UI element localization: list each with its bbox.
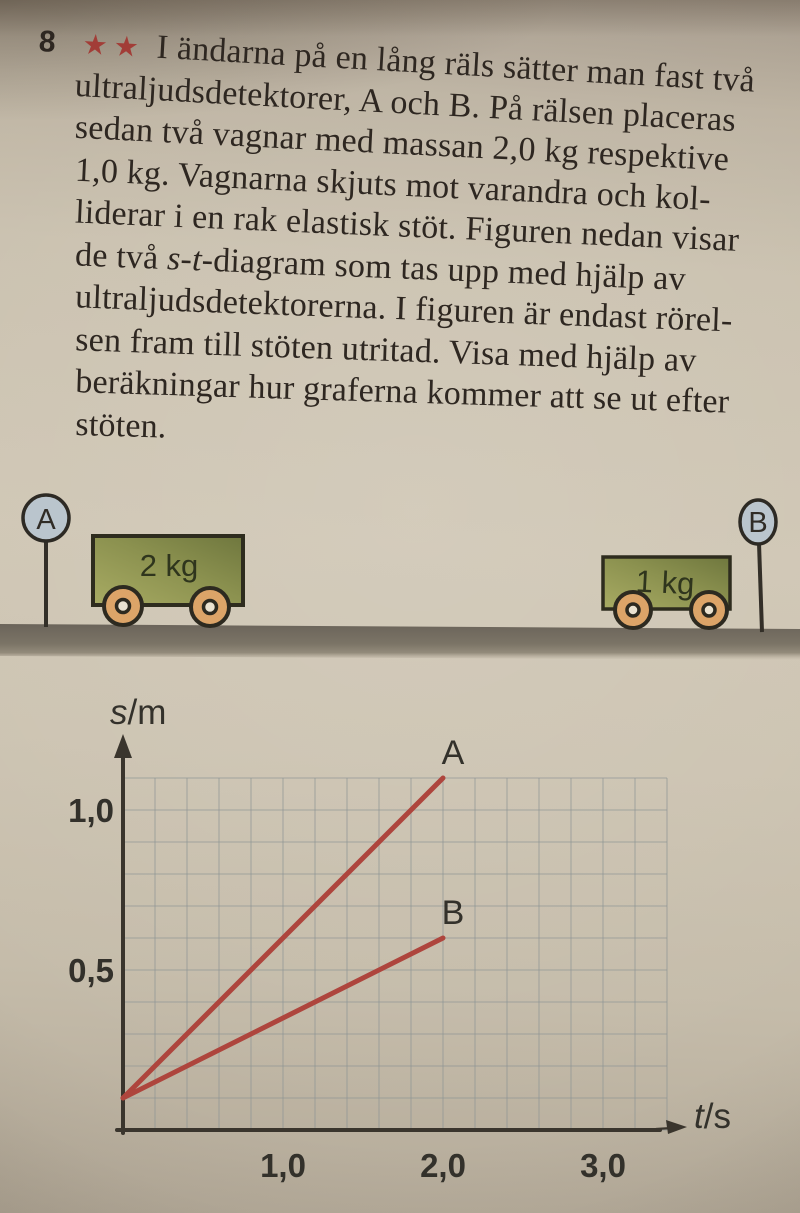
problem-number: 8 <box>38 25 57 59</box>
x-tick-label: 2,0 <box>420 1147 466 1184</box>
y-tick-label: 0,5 <box>68 952 114 989</box>
x-tick-label: 3,0 <box>580 1147 626 1184</box>
detector-b-pole <box>759 543 762 632</box>
problem-line-text: de två <box>74 236 167 277</box>
y-tick-label: 1,0 <box>68 792 114 829</box>
x-tick-label: 1,0 <box>260 1147 306 1184</box>
x-axis-label: t/s <box>694 1097 731 1136</box>
detector-a-label: A <box>36 504 56 536</box>
y-axis-label: s/m <box>110 693 166 732</box>
difficulty-stars: ★★ <box>82 29 146 63</box>
st-diagram-term: s-t <box>166 240 202 278</box>
wheel-hub <box>117 600 130 613</box>
textbook-page: 8★★I ändarna på en lång räls sätter man … <box>0 0 800 1213</box>
problem-statement: 8★★I ändarna på en lång räls sätter man … <box>40 22 785 447</box>
series-label-A: A <box>442 734 465 772</box>
detector-b-label: B <box>748 507 767 539</box>
wheel-hub <box>703 604 715 616</box>
y-axis-arrow <box>114 734 132 758</box>
series-label-B: B <box>442 894 465 932</box>
st-diagram: 1,02,03,00,51,0ABs/mt/s <box>0 685 800 1213</box>
wheel-hub <box>204 601 217 614</box>
rail-ground <box>0 624 800 660</box>
carts-illustration: A 2 kg 1 kg B <box>0 480 800 670</box>
problem-line-text: stöten. <box>75 406 167 446</box>
wheel-hub <box>627 604 639 616</box>
cart-left-mass-label: 2 kg <box>140 548 199 583</box>
x-axis-arrow <box>666 1120 687 1134</box>
